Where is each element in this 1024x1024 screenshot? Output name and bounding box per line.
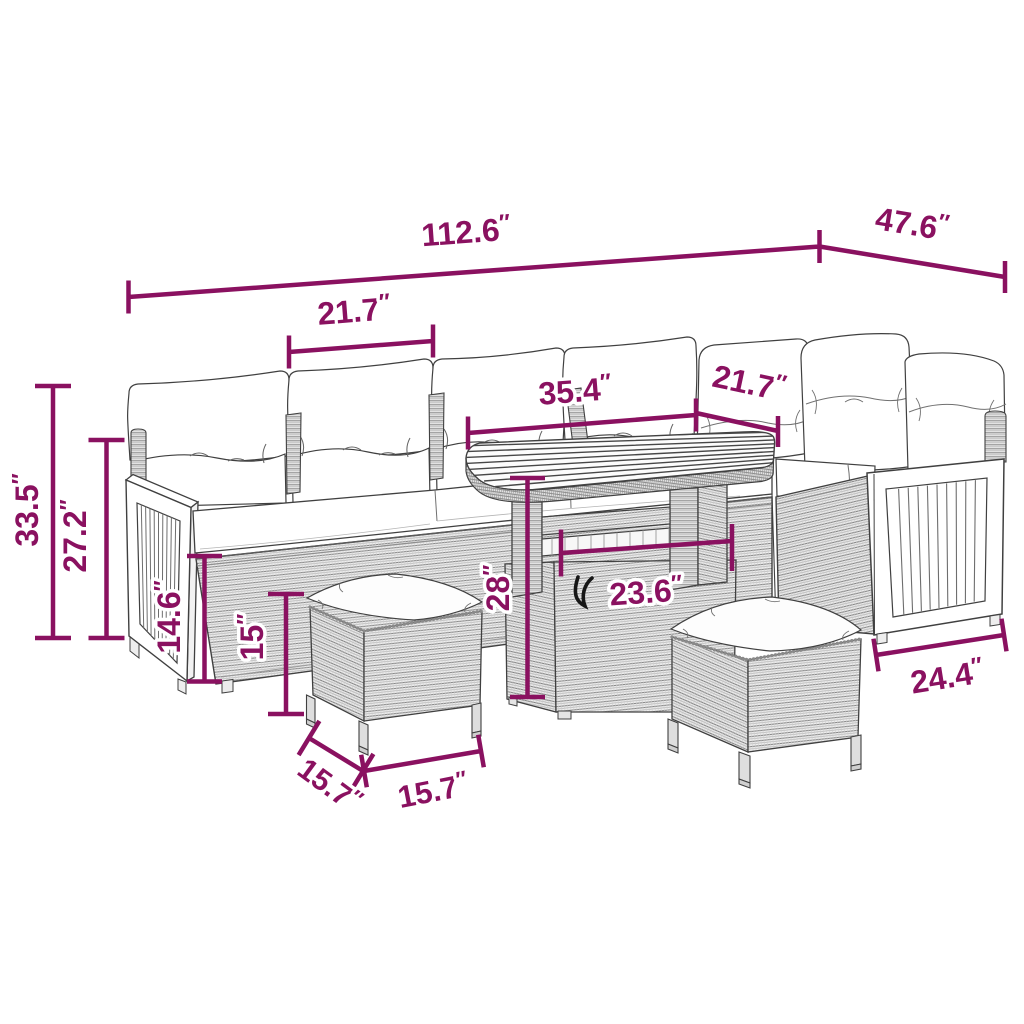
svg-text:35.4″: 35.4″ <box>537 368 613 412</box>
svg-text:21.7″: 21.7″ <box>316 288 392 332</box>
svg-text:23.6″: 23.6″ <box>608 569 684 612</box>
svg-text:112.6″: 112.6″ <box>420 209 512 253</box>
